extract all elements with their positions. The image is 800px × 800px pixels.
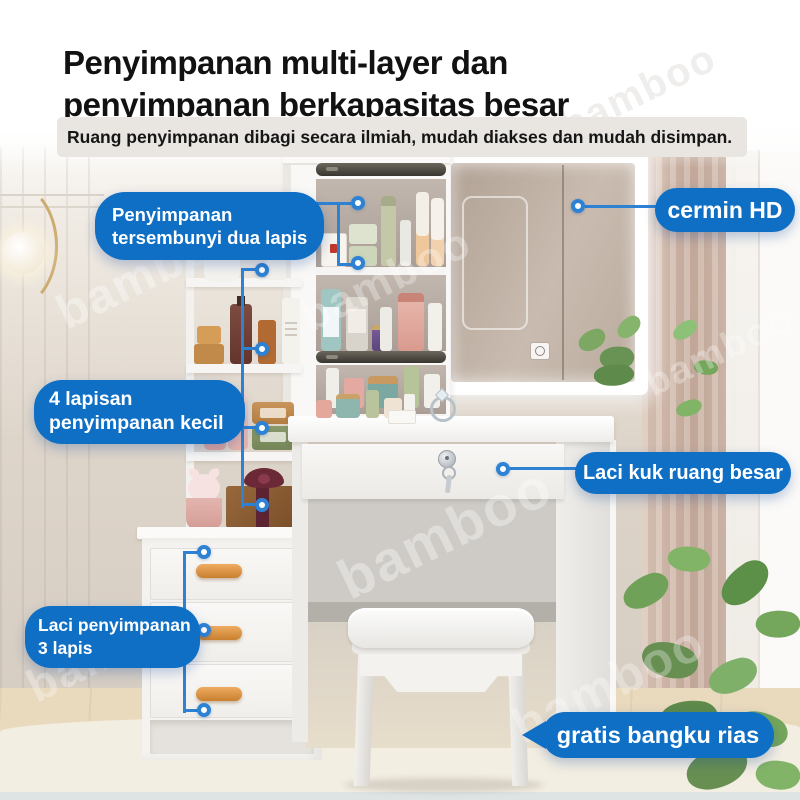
- leaf-icon: [713, 554, 777, 611]
- subtitle-text: Ruang penyimpanan dibagi secara ilmiah, …: [67, 117, 747, 157]
- page-title: Penyimpanan multi-layer dan penyimpanan …: [63, 42, 763, 126]
- connector-dot: [255, 421, 269, 435]
- jewelry-box: [388, 410, 416, 424]
- pendant-lamp-globe: [2, 232, 44, 274]
- candle-tin: [336, 394, 360, 418]
- plant-vine: [664, 312, 734, 442]
- plant-pot: [204, 260, 240, 282]
- leaf-icon: [618, 569, 673, 614]
- cosmetic-box: [321, 233, 347, 267]
- cream-tube: [431, 198, 444, 266]
- cream-jar: [197, 326, 221, 344]
- connector-dot: [255, 498, 269, 512]
- title-line-1: Penyimpanan multi-layer dan: [63, 42, 763, 84]
- desk-main-drawer: [302, 444, 564, 499]
- callout-four-small-storage-layers: 4 lapisan penyimpanan kecil: [34, 380, 245, 444]
- potted-plant: [616, 540, 800, 800]
- cosmetic-box: [349, 224, 377, 244]
- leaf-icon: [670, 317, 700, 342]
- connector-dot: [255, 342, 269, 356]
- connector-dot: [255, 263, 269, 277]
- side-shelf-board: [186, 364, 302, 373]
- callout-big-drawer: Laci kuk ruang besar: [575, 452, 791, 494]
- leaf-icon: [692, 357, 719, 378]
- connector-line: [337, 203, 340, 266]
- spray-bottle: [321, 289, 341, 351]
- powder-jar: [398, 293, 424, 351]
- cream-tube: [416, 192, 429, 266]
- lotion-bottle: [282, 298, 300, 364]
- leaf-icon: [675, 398, 703, 417]
- mirror-seam: [562, 165, 564, 380]
- serum-bottle: [380, 307, 392, 351]
- touch-switch-icon: [530, 342, 550, 360]
- connector-dot: [496, 462, 510, 476]
- leaf-icon: [705, 654, 761, 697]
- leaf-icon: [752, 754, 800, 796]
- callout-free-stool: gratis bangku rias: [542, 712, 774, 758]
- toner-bottle: [381, 196, 396, 266]
- callout-hidden-two-layer-storage: Penyimpanan tersembunyi dua lapis: [95, 192, 324, 260]
- cream-jar: [194, 344, 224, 364]
- leaf-icon: [637, 632, 703, 688]
- lotion-bottle: [428, 303, 442, 351]
- promo-image: bamboo bamboo bamboo bamboo bamboo bambo…: [0, 0, 800, 800]
- connector-dot: [351, 256, 365, 270]
- drawer-cabinet-base: [150, 720, 314, 754]
- stool-cushion: [348, 608, 534, 648]
- connector-dot: [571, 199, 585, 213]
- connector-dot: [351, 196, 365, 210]
- connector-line: [585, 205, 657, 208]
- wood-drawer-handle: [196, 687, 242, 701]
- callout-three-layer-drawers: Laci penyimpanan 3 lapis: [25, 606, 200, 668]
- connector-line: [241, 268, 244, 508]
- callout-hd-mirror: cermin HD: [655, 188, 795, 232]
- desk-tabletop: [288, 416, 614, 442]
- lotion-bottle: [346, 297, 368, 351]
- connector-dot: [197, 703, 211, 717]
- pump-bottle: [400, 220, 411, 266]
- leaf-icon: [665, 541, 712, 576]
- side-shelf-board: [186, 452, 302, 461]
- connector-line: [510, 467, 577, 470]
- mirror-led-ring: [462, 196, 528, 330]
- toner-bottle: [366, 390, 379, 418]
- connector-dot: [197, 545, 211, 559]
- sliding-door-handle: [316, 163, 446, 176]
- sliding-door-handle: [316, 351, 446, 363]
- cat-pot-base: [186, 498, 222, 530]
- cosmetic-jar: [316, 400, 332, 418]
- wood-drawer-handle: [196, 564, 242, 578]
- leaf-icon: [754, 606, 800, 641]
- desk-back-panel: [306, 498, 558, 602]
